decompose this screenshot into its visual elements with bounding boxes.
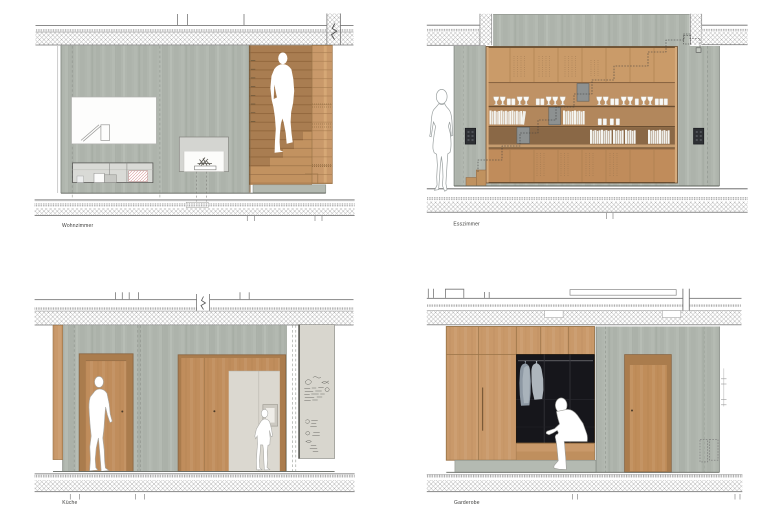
svg-text:Esszimmer: Esszimmer — [453, 222, 480, 228]
svg-text:Garderobe: Garderobe — [454, 500, 480, 506]
svg-text:Küche: Küche — [62, 500, 77, 506]
svg-text:Wohnzimmer: Wohnzimmer — [62, 223, 93, 229]
